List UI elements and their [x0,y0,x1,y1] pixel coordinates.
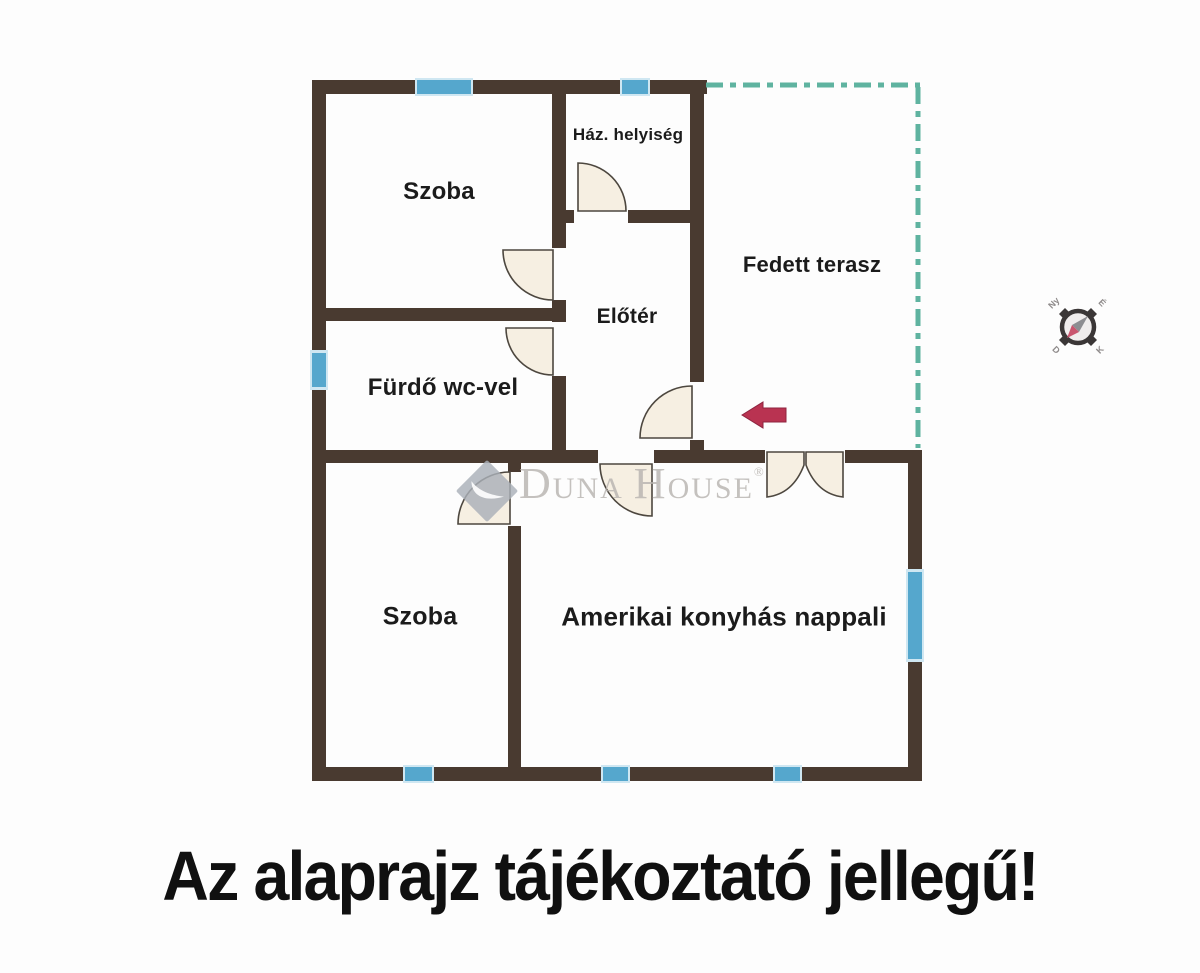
double-door-swing [767,452,843,497]
window-marker [620,78,650,96]
room-label-haz-helyiseg: Ház. helyiség [573,125,683,145]
watermark-d: D [519,459,553,508]
room-label-nappali: Amerikai konyhás nappali [561,602,887,633]
compass-label-se: K [1094,344,1106,356]
compass-label-ne: É [1096,297,1107,308]
watermark-una: UNA [553,472,624,505]
door-swing [506,328,553,375]
door-swing [578,163,626,211]
room-label-szoba-bottom: Szoba [383,603,458,632]
window-marker [601,765,630,783]
entrance-arrow-icon [742,402,786,428]
window-marker [403,765,434,783]
duna-house-watermark: DUNAHOUSE® [519,462,764,506]
compass-label-nw: Ny [1046,295,1061,310]
room-label-fedett-terasz: Fedett terasz [743,252,881,278]
door-swing [640,386,692,438]
window-marker [310,350,328,390]
window-marker [415,78,473,96]
room-label-furdo: Fürdő wc-vel [368,374,518,402]
floor-plan-page: Ny É K D Szoba Ház. helyiség Előtér Fede… [0,0,1200,973]
compass-icon: Ny É K D [1046,295,1108,356]
watermark-h: H [634,459,668,508]
compass-label-sw: D [1050,344,1062,356]
window-marker [906,569,924,662]
registered-mark: ® [754,464,764,479]
door-swing [503,250,553,300]
disclaimer-text: Az alaprajz tájékoztató jellegű! [48,836,1152,916]
room-label-szoba-top: Szoba [403,178,475,206]
watermark-ouse: OUSE [668,472,754,505]
room-label-eloter: Előtér [597,305,658,329]
window-marker [773,765,802,783]
